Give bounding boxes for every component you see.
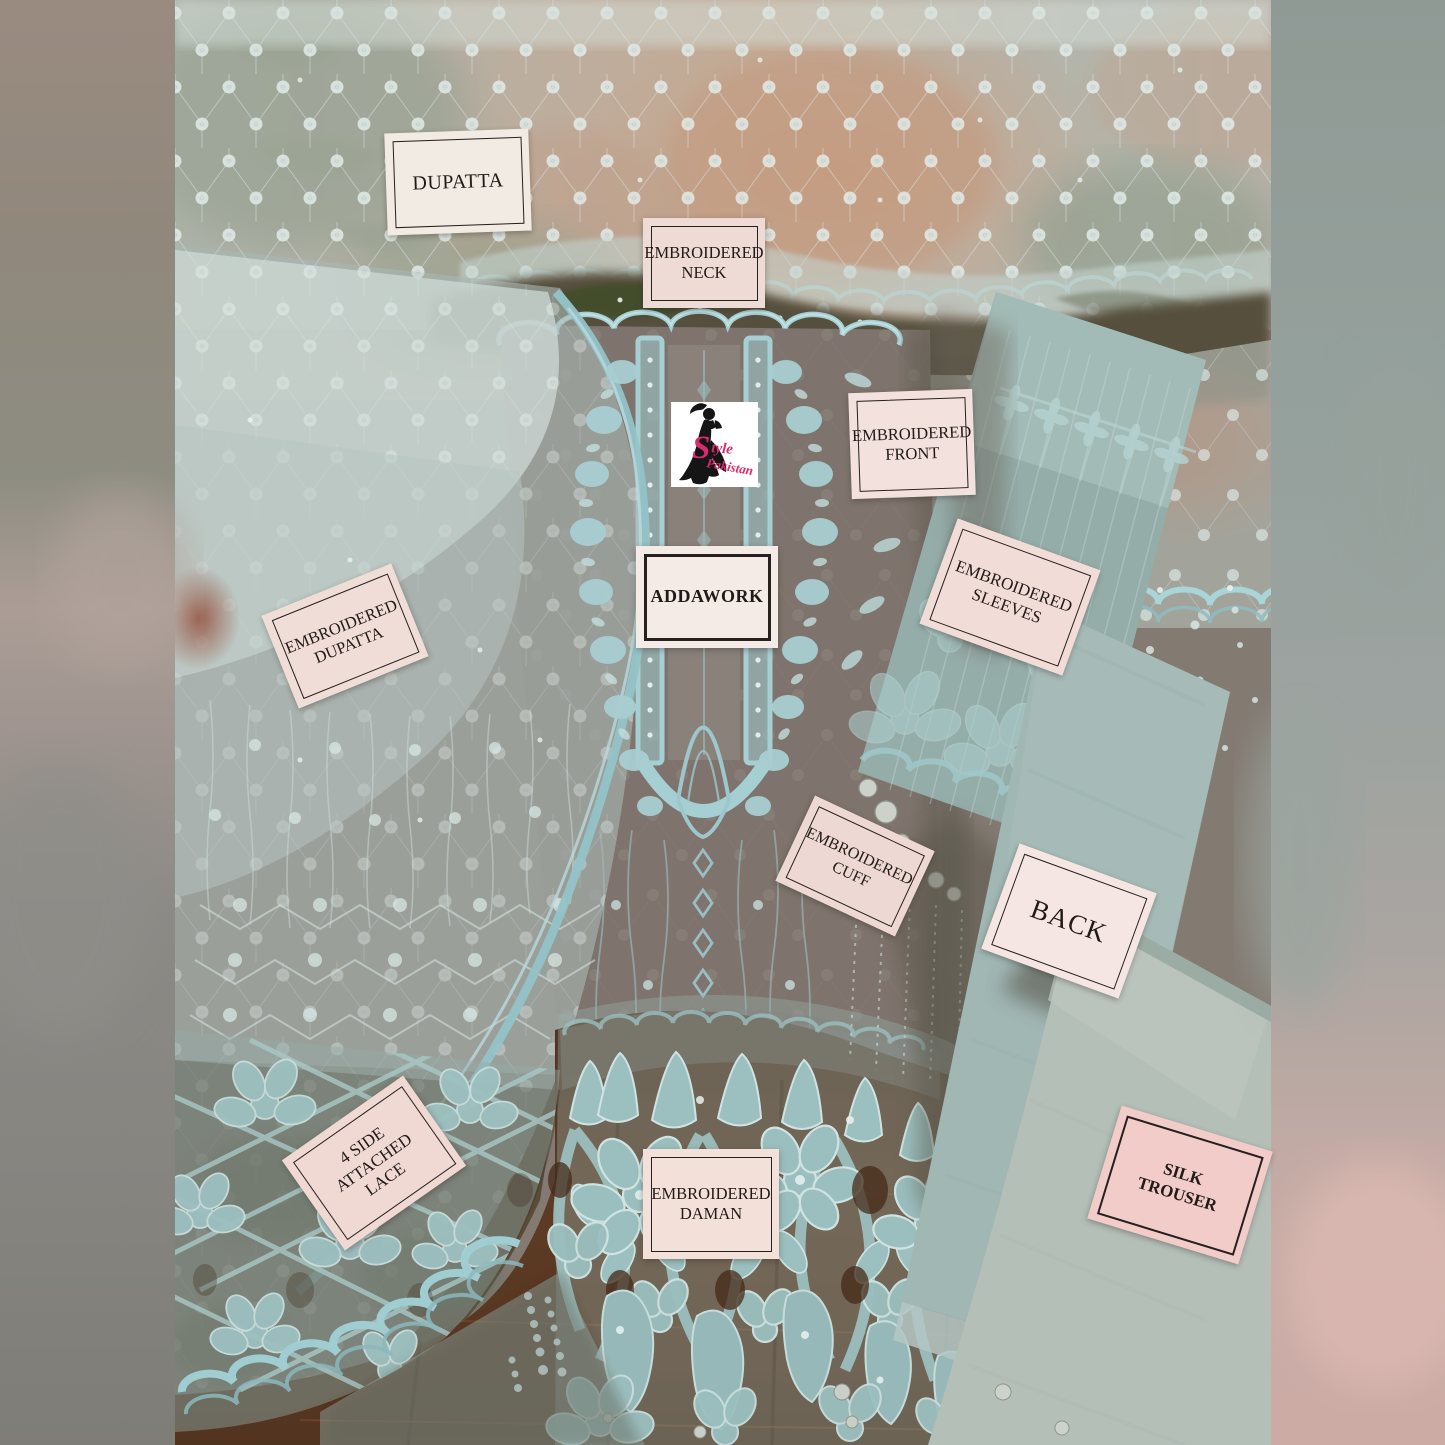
svg-text:tyle: tyle	[711, 440, 734, 458]
